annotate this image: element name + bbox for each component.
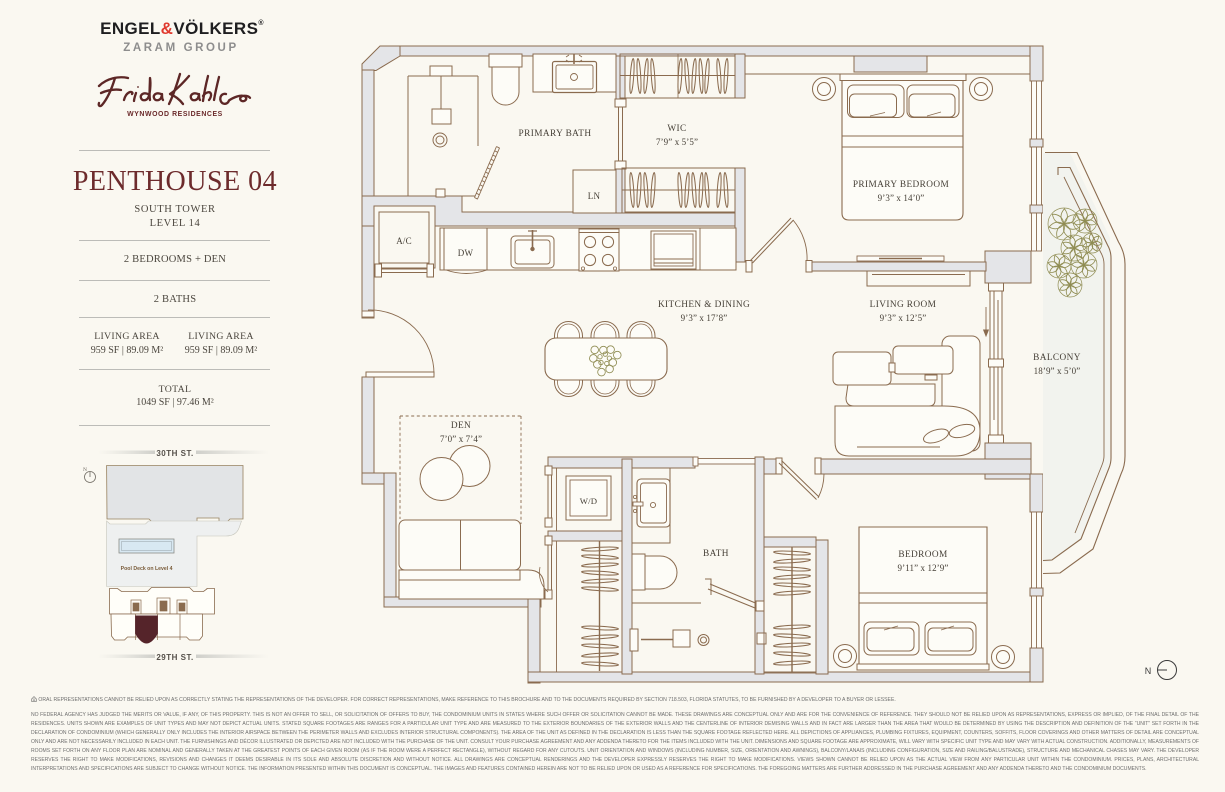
svg-text:BALCONY: BALCONY [1033,353,1081,363]
svg-text:7’0” x 7’4”: 7’0” x 7’4” [440,434,482,444]
svg-text:N: N [83,467,87,473]
svg-text:PRIMARY BATH: PRIMARY BATH [519,129,592,139]
svg-text:Pool Deck on Level 4: Pool Deck on Level 4 [121,566,173,572]
svg-text:N: N [1145,666,1152,676]
svg-text:LN: LN [588,191,601,201]
svg-text:9’3” x 17’8”: 9’3” x 17’8” [681,313,728,323]
svg-text:WIC: WIC [667,124,686,134]
svg-text:9’3” x 12’5”: 9’3” x 12’5” [880,313,927,323]
svg-text:BATH: BATH [703,549,729,559]
svg-text:29TH ST.: 29TH ST. [156,653,193,662]
svg-text:LIVING ROOM: LIVING ROOM [870,300,937,310]
svg-text:7’9” x 5’5”: 7’9” x 5’5” [656,137,698,147]
svg-text:PRIMARY BEDROOM: PRIMARY BEDROOM [853,180,949,190]
svg-text:DW: DW [458,248,474,258]
svg-text:DEN: DEN [451,421,471,431]
svg-text:W/D: W/D [580,496,598,506]
svg-text:A/C: A/C [396,236,412,246]
svg-text:BEDROOM: BEDROOM [898,550,947,560]
svg-text:30TH ST.: 30TH ST. [156,449,193,458]
svg-text:9’11” x 12’9”: 9’11” x 12’9” [898,563,949,573]
svg-text:KITCHEN & DINING: KITCHEN & DINING [658,300,750,310]
svg-text:18’9” x 5’0”: 18’9” x 5’0” [1034,366,1081,376]
svg-text:9’3” x 14’0”: 9’3” x 14’0” [878,193,925,203]
